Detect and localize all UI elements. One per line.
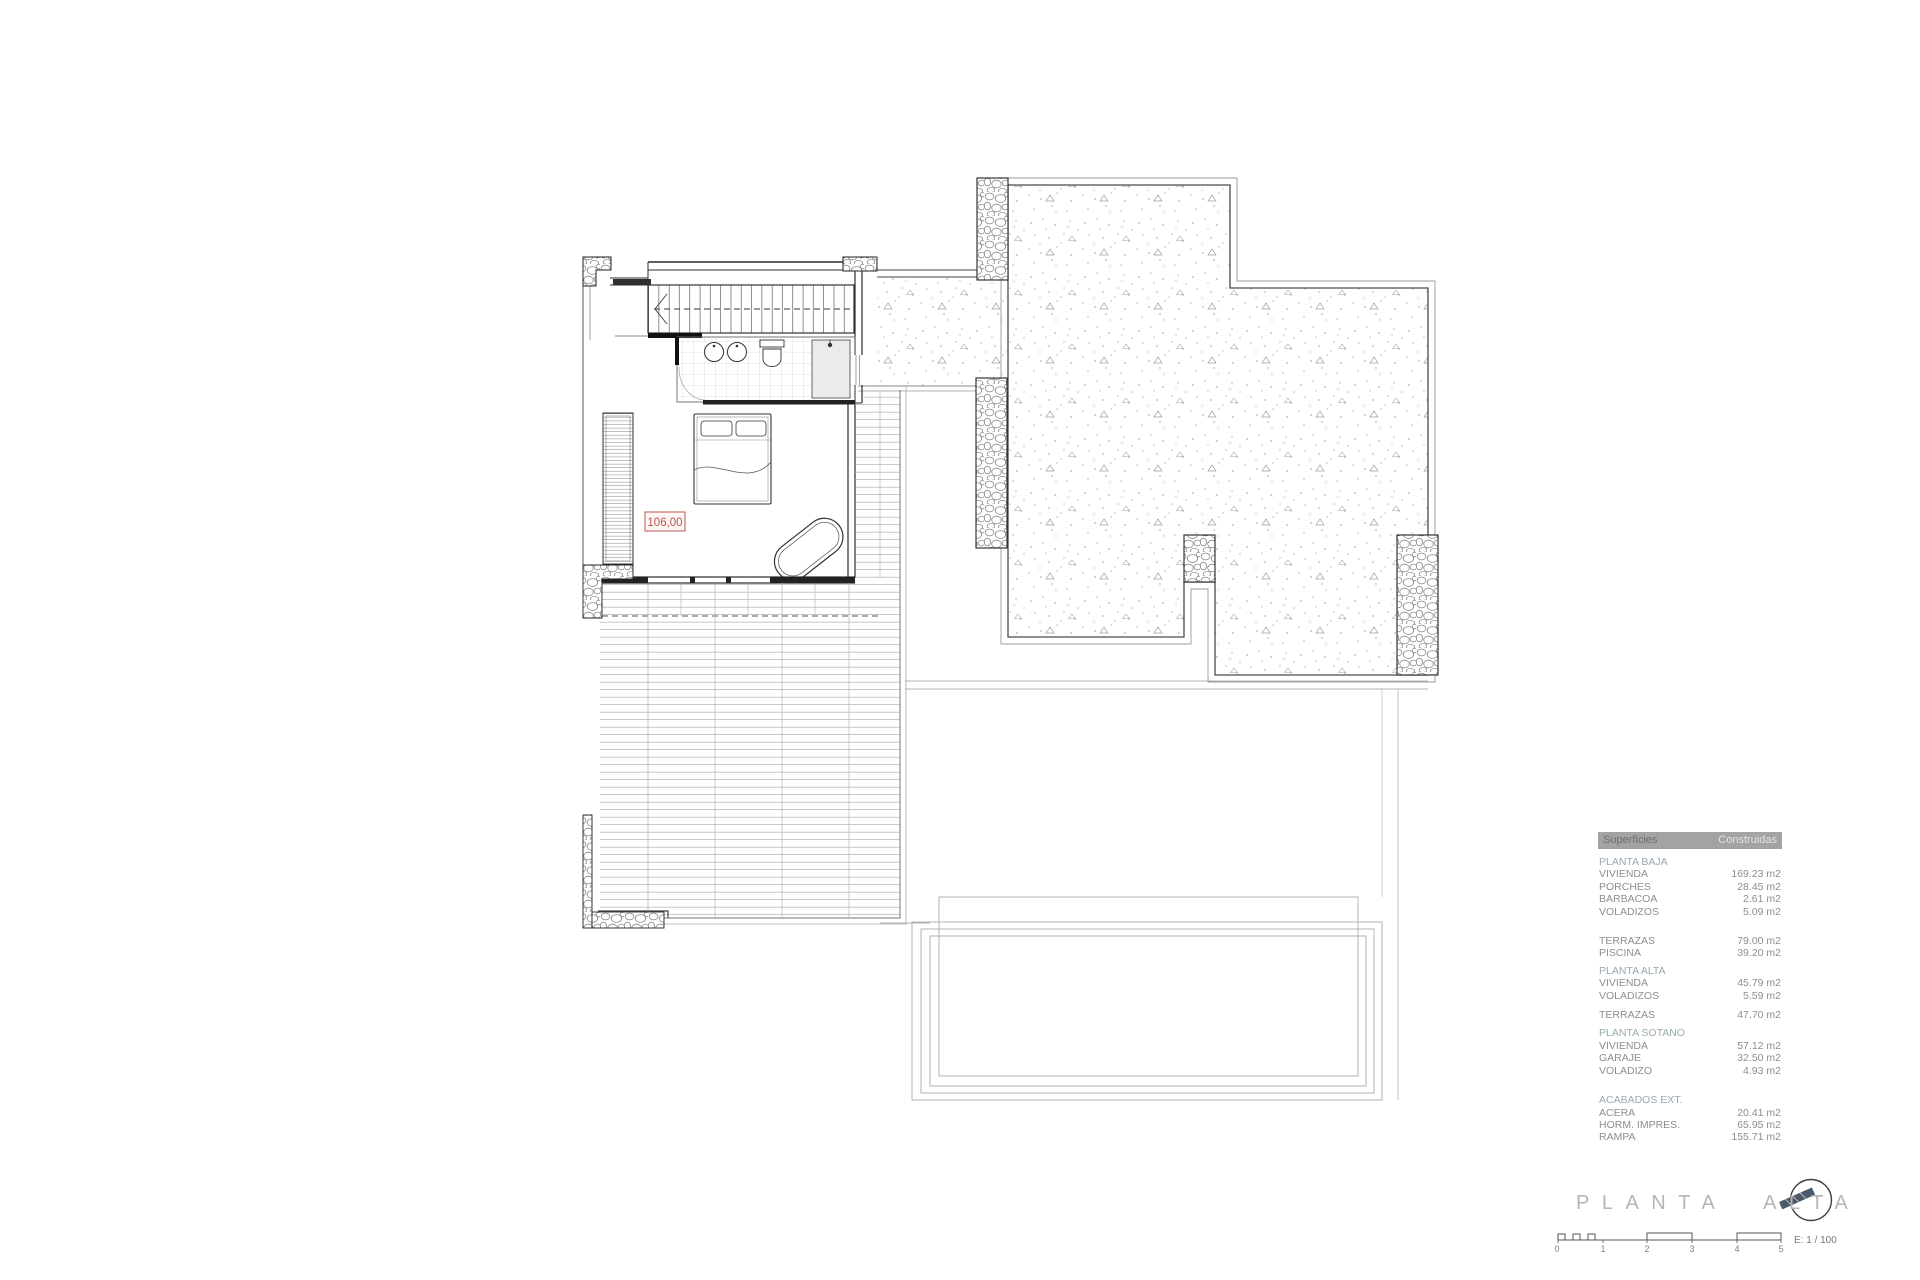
section-title-planta-alta: PLANTA ALTA — [1598, 965, 1782, 977]
scale-tick-1: 1 — [1600, 1244, 1605, 1254]
scale-tick-2: 2 — [1644, 1244, 1649, 1254]
table-row: PISCINA39.20 m2 — [1598, 947, 1782, 959]
scale-tick-5: 5 — [1778, 1244, 1783, 1254]
table-row: TERRAZAS79.00 m2 — [1598, 935, 1782, 947]
pillow-left — [701, 421, 732, 436]
section-title-acabados: ACABADOS EXT. — [1598, 1094, 1782, 1106]
pillow-right — [736, 421, 766, 436]
wardrobe-louver — [603, 413, 633, 564]
shower — [812, 340, 850, 398]
areas-table-header: Superficies Construidas — [1598, 832, 1782, 849]
table-row: BARBACOA2.61 m2 — [1598, 893, 1782, 905]
stone-corner-top-right — [843, 257, 877, 271]
scale-ratio-label: E: 1 / 100 — [1794, 1235, 1837, 1246]
pool-outline — [880, 897, 1382, 1100]
bathroom — [675, 337, 864, 405]
table-row: PORCHES28.45 m2 — [1598, 881, 1782, 893]
bedroom-south-wall — [598, 577, 855, 583]
areas-table-col1: Superficies — [1603, 834, 1657, 847]
scale-tick-4: 4 — [1734, 1244, 1739, 1254]
bedroom: 106,00 — [598, 413, 855, 587]
section-title-planta-baja: PLANTA BAJA — [1598, 856, 1782, 868]
table-row: HORM. IMPRES.65.95 m2 — [1598, 1119, 1782, 1131]
areas-table-col2: Construidas — [1718, 834, 1777, 847]
terrace-surface — [1008, 185, 1428, 675]
upper-terrace — [1001, 178, 1435, 682]
table-row: VIVIENDA45.79 m2 — [1598, 977, 1782, 989]
reference-lines — [905, 681, 1428, 1100]
areas-table: Superficies Construidas PLANTA BAJA VIVI… — [1598, 832, 1782, 1144]
table-row: VOLADIZOS5.09 m2 — [1598, 906, 1782, 918]
table-row: TERRAZAS47.70 m2 — [1598, 1009, 1782, 1021]
table-row: RAMPA155.71 m2 — [1598, 1131, 1782, 1143]
terrace-bridge — [858, 270, 1008, 391]
table-row: VIVIENDA169.23 m2 — [1598, 868, 1782, 880]
table-row: ACERA20.41 m2 — [1598, 1107, 1782, 1119]
scale-bar — [1558, 1233, 1781, 1243]
table-row: VOLADIZOS5.59 m2 — [1598, 990, 1782, 1002]
bed — [694, 414, 771, 504]
scale-tick-0: 0 — [1554, 1244, 1559, 1254]
clerestory-window-band — [613, 279, 651, 285]
sheet-title: PLANTA ALTA — [1576, 1192, 1860, 1215]
room-area-tag: 106,00 — [645, 512, 685, 531]
room-area-label: 106,00 — [647, 517, 682, 529]
section-title-planta-sotano: PLANTA SOTANO — [1598, 1027, 1782, 1039]
table-row: VOLADIZO4.93 m2 — [1598, 1065, 1782, 1077]
bathtub — [767, 511, 850, 588]
scale-tick-3: 3 — [1689, 1244, 1694, 1254]
staircase — [615, 285, 854, 338]
toilet — [760, 340, 784, 367]
scale-bar-numbers: 0 1 2 3 4 5 — [1554, 1244, 1783, 1254]
bathroom-window — [853, 355, 864, 385]
stone-corner-top-left — [583, 257, 611, 286]
table-row: GARAJE32.50 m2 — [1598, 1052, 1782, 1064]
table-row: VIVIENDA57.12 m2 — [1598, 1040, 1782, 1052]
